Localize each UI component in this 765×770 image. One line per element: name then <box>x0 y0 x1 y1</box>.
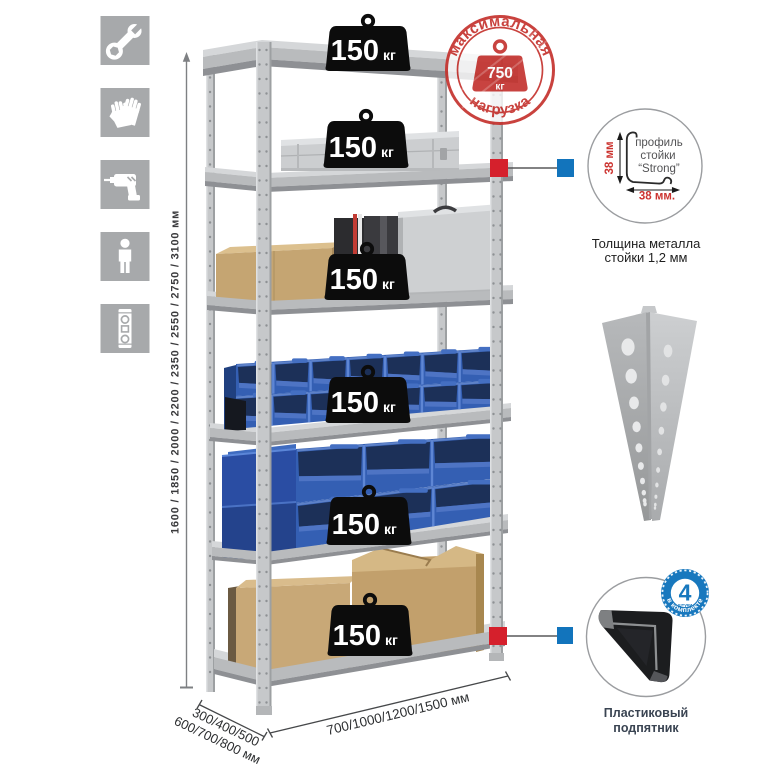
svg-text:150: 150 <box>331 387 379 419</box>
svg-text:кг: кг <box>381 144 394 160</box>
svg-text:подпятник: подпятник <box>613 721 679 735</box>
svg-text:150: 150 <box>332 509 380 541</box>
svg-text:38 мм: 38 мм <box>604 141 616 174</box>
svg-text:150: 150 <box>333 620 381 652</box>
svg-text:кг: кг <box>385 632 398 648</box>
svg-text:4: 4 <box>679 580 692 606</box>
svg-text:150: 150 <box>329 132 377 164</box>
svg-text:кг: кг <box>384 521 397 537</box>
svg-text:1600 / 1850 / 2000 / 2200 / 23: 1600 / 1850 / 2000 / 2200 / 2350 / 2550 … <box>170 210 182 534</box>
svg-text:Пластиковый: Пластиковый <box>604 706 688 720</box>
svg-text:профиль: профиль <box>635 137 683 149</box>
svg-text:150: 150 <box>330 264 378 296</box>
svg-text:“Strong”: “Strong” <box>638 163 680 175</box>
svg-text:Толщина металла: Толщина металла <box>592 236 701 251</box>
svg-text:кг: кг <box>382 276 395 292</box>
svg-text:кг: кг <box>383 399 396 415</box>
svg-text:кг: кг <box>383 47 396 63</box>
svg-text:38 мм.: 38 мм. <box>639 191 675 203</box>
svg-text:стойки: стойки <box>640 150 675 162</box>
svg-text:стойки 1,2 мм: стойки 1,2 мм <box>605 250 688 265</box>
svg-text:кг: кг <box>495 82 504 93</box>
svg-text:150: 150 <box>331 35 379 67</box>
